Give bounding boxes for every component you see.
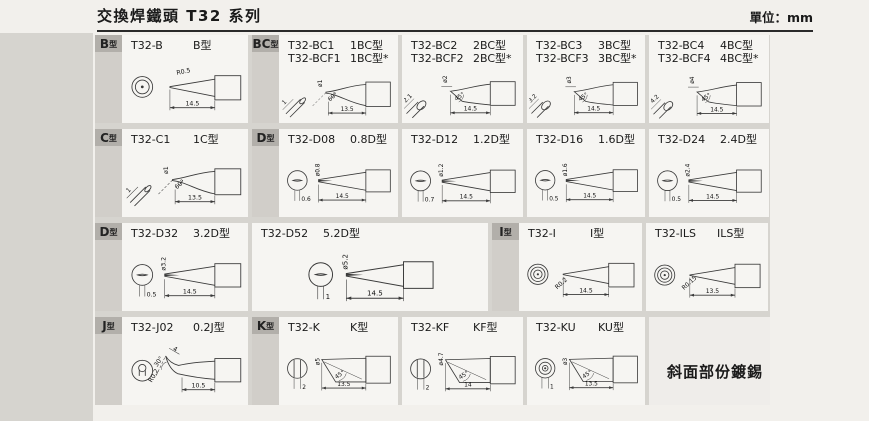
svg-text:14.5: 14.5: [584, 194, 597, 200]
svg-text:0.5: 0.5: [672, 197, 682, 203]
model-type: 1.2D型: [473, 133, 510, 146]
model-name: T32-D52: [261, 227, 323, 240]
model-entry: T32-KFKF型: [411, 321, 521, 334]
model-type: 0.8D型: [350, 133, 387, 146]
tip-row: B型 T32-BB型 R0.514.5 BC型 T32-BC11BC型T32-B…: [95, 35, 770, 123]
svg-text:13.5: 13.5: [706, 288, 720, 295]
svg-text:R0.2: R0.2: [554, 277, 569, 292]
tip-drawing-svg: 1ø160°13.5: [281, 69, 395, 120]
svg-text:ø1.2: ø1.2: [438, 163, 445, 176]
svg-text:ø4.7: ø4.7: [438, 352, 445, 365]
note-area: 斜面部份鍍錫: [649, 317, 770, 405]
model-name: T32-BC1: [288, 39, 350, 52]
tip-drawing-svg: 430°R0.210.5: [125, 343, 246, 397]
tip-drawing: R0.214.5: [519, 240, 642, 311]
tip-drawing-svg: 2ø545°13.5: [281, 344, 395, 395]
model-entry: T32-BC33BC型: [536, 39, 643, 52]
svg-text:ø3: ø3: [567, 76, 573, 84]
tip-drawing: ø44.245°14.5: [649, 65, 769, 123]
model-type: 5.2D型: [323, 227, 360, 240]
tip-drawing-svg: 1ø160°13.5: [125, 155, 246, 209]
type-badge: BC型: [252, 35, 279, 52]
model-list: T32-KUKU型: [527, 317, 645, 334]
page-left-margin: [0, 33, 93, 421]
model-list: T32-D161.6D型: [527, 129, 645, 146]
type-badge-column: D型: [95, 223, 122, 311]
tip-cell: T32-KFKF型 2ø4.745°14: [402, 317, 523, 405]
tip-cell-body: T32-BC33BC型T32-BCF33BC型* ø33.245°14.5: [527, 35, 645, 123]
model-name: T32-KU: [536, 321, 598, 334]
model-list: T32-D525.2D型: [252, 223, 488, 240]
svg-text:45°: 45°: [454, 91, 467, 103]
model-list: T32-J020.2J型: [122, 317, 248, 334]
model-entry: T32-D161.6D型: [536, 133, 643, 146]
tip-cell-body: T32-D242.4D型 0.5ø2.414.5: [649, 129, 769, 217]
model-name: T32-ILS: [655, 227, 717, 240]
svg-text:2: 2: [303, 385, 307, 391]
model-list: T32-KK型: [279, 317, 398, 334]
tip-drawing: R0.1513.5: [646, 240, 768, 311]
model-list: T32-BC44BC型T32-BCF44BC型*: [649, 35, 769, 65]
model-entry: T32-BCF44BC型*: [658, 52, 767, 65]
svg-text:ø1: ø1: [318, 79, 324, 87]
tip-cell: T32-D242.4D型 0.5ø2.414.5: [649, 129, 769, 217]
svg-text:1: 1: [326, 292, 331, 301]
model-entry: T32-BC11BC型: [288, 39, 396, 52]
type-badge-column: J型: [95, 317, 122, 405]
tip-cell: C型 T32-C11C型 1ø160°13.5: [95, 129, 248, 217]
model-type: 2BC型: [473, 39, 506, 52]
type-badge: I型: [492, 223, 519, 240]
model-type: 0.2J型: [193, 321, 225, 334]
tip-drawing: 1ø345°13.5: [527, 334, 645, 405]
model-name: T32-BCF1: [288, 52, 350, 65]
model-list: T32-D242.4D型: [649, 129, 769, 146]
model-name: T32-I: [528, 227, 590, 240]
tip-row: J型 T32-J020.2J型 430°R0.210.5 K型 T32-KK型 …: [95, 317, 770, 405]
model-name: T32-D24: [658, 133, 720, 146]
model-type: I型: [590, 227, 604, 240]
svg-text:45°: 45°: [458, 369, 471, 381]
model-name: T32-D32: [131, 227, 193, 240]
model-type: 1BC型: [350, 39, 383, 52]
model-type: ILS型: [717, 227, 744, 240]
svg-text:14.5: 14.5: [460, 193, 473, 200]
model-type: 3.2D型: [193, 227, 230, 240]
model-type: 3BC型: [598, 39, 631, 52]
model-list: T32-D121.2D型: [402, 129, 523, 146]
model-list: T32-D323.2D型: [122, 223, 248, 240]
page-header: 交換焊鐵頭 T32 系列 單位：mm: [97, 5, 813, 32]
tip-cell-body: T32-KFKF型 2ø4.745°14: [402, 317, 523, 405]
model-type: KU型: [598, 321, 624, 334]
model-entry: T32-D121.2D型: [411, 133, 521, 146]
model-name: T32-B: [131, 39, 193, 52]
unit-label: 單位：mm: [749, 7, 813, 26]
tip-drawing-svg: 0.5ø2.414.5: [651, 156, 766, 207]
model-name: T32-BCF4: [658, 52, 720, 65]
model-list: T32-KFKF型: [402, 317, 523, 334]
tip-drawing-svg: ø44.245°14.5: [651, 69, 766, 120]
model-entry: T32-D323.2D型: [131, 227, 246, 240]
svg-text:13.5: 13.5: [188, 194, 202, 201]
tip-cell: BC型 T32-BC11BC型T32-BCF11BC型* 1ø160°13.5: [252, 35, 398, 123]
model-name: T32-BCF2: [411, 52, 473, 65]
svg-text:ø2: ø2: [443, 76, 450, 84]
svg-text:ø5.2: ø5.2: [340, 254, 349, 270]
tip-drawing-svg: 2ø4.745°14: [404, 344, 520, 395]
tip-cell: T32-BC33BC型T32-BCF33BC型* ø33.245°14.5: [527, 35, 645, 123]
svg-text:2: 2: [426, 384, 430, 391]
model-name: T32-BC4: [658, 39, 720, 52]
tip-cell-body: T32-J020.2J型 430°R0.210.5: [122, 317, 248, 405]
tip-drawing-svg: ø22.145°14.5: [404, 68, 520, 119]
tip-drawing: 0.5ø2.414.5: [649, 146, 769, 217]
svg-text:3.2: 3.2: [529, 93, 539, 104]
tip-cell: T32-KUKU型 1ø345°13.5: [527, 317, 645, 405]
model-type: 1BC型*: [350, 52, 389, 65]
page-title: 交換焊鐵頭 T32 系列: [97, 5, 262, 26]
svg-text:14.5: 14.5: [707, 194, 720, 200]
tip-drawing-svg: 1ø345°13.5: [529, 344, 642, 394]
svg-text:30°: 30°: [152, 354, 165, 368]
svg-text:1: 1: [550, 385, 554, 391]
tip-cell: J型 T32-J020.2J型 430°R0.210.5: [95, 317, 248, 405]
type-badge: D型: [252, 129, 279, 146]
model-entry: T32-II型: [528, 227, 640, 240]
svg-text:13.5: 13.5: [338, 382, 351, 388]
model-list: T32-D080.8D型: [279, 129, 398, 146]
model-type: 3BC型*: [598, 52, 637, 65]
svg-text:0.5: 0.5: [550, 197, 560, 203]
tip-drawing-svg: 0.5ø1.614.5: [529, 156, 642, 206]
svg-text:2.1: 2.1: [404, 93, 414, 105]
model-type: 1C型: [193, 133, 219, 146]
model-name: T32-D08: [288, 133, 350, 146]
svg-text:ø5: ø5: [316, 358, 322, 366]
tip-cell-body: T32-D161.6D型 0.5ø1.614.5: [527, 129, 645, 217]
tip-drawing: 0.5ø3.214.5: [122, 240, 248, 311]
tip-cell: I型 T32-II型 R0.214.5: [492, 223, 642, 311]
tip-cell: T32-D525.2D型 1ø5.214.5: [252, 223, 488, 311]
tip-cell: K型 T32-KK型 2ø545°13.5: [252, 317, 398, 405]
tip-drawing-svg: 1ø5.214.5: [301, 245, 439, 306]
model-entry: T32-BC22BC型: [411, 39, 521, 52]
tip-drawing: 0.7ø1.214.5: [402, 146, 523, 217]
model-entry: T32-ILSILS型: [655, 227, 766, 240]
model-type: 4BC型: [720, 39, 753, 52]
model-name: T32-D12: [411, 133, 473, 146]
svg-text:10.5: 10.5: [191, 382, 205, 389]
tip-cell-body: T32-BC11BC型T32-BCF11BC型* 1ø160°13.5: [279, 35, 398, 123]
type-badge-column: C型: [95, 129, 122, 217]
tip-cell-body: T32-BC44BC型T32-BCF44BC型* ø44.245°14.5: [649, 35, 769, 123]
tip-cell: T32-BC22BC型T32-BCF22BC型* ø22.145°14.5: [402, 35, 523, 123]
svg-text:0.7: 0.7: [425, 196, 435, 203]
tip-cell-body: T32-D080.8D型 0.6ø0.814.5: [279, 129, 398, 217]
svg-text:13.5: 13.5: [341, 107, 354, 113]
svg-text:0.5: 0.5: [146, 291, 156, 298]
type-badge: B型: [95, 35, 122, 52]
tip-drawing-svg: 0.6ø0.814.5: [281, 156, 395, 207]
tip-drawing: 430°R0.210.5: [122, 334, 248, 405]
tip-cell-body: T32-D525.2D型 1ø5.214.5: [252, 223, 488, 311]
svg-text:14.5: 14.5: [336, 194, 349, 200]
svg-text:14.5: 14.5: [711, 107, 724, 113]
svg-text:R0.15: R0.15: [681, 274, 699, 291]
svg-text:ø4: ø4: [690, 76, 696, 84]
type-badge-column: B型: [95, 35, 122, 123]
model-type: 2BC型*: [473, 52, 512, 65]
type-badge-column: D型: [252, 129, 279, 217]
svg-text:13.5: 13.5: [585, 382, 598, 388]
tip-cell: D型 T32-D080.8D型 0.6ø0.814.5: [252, 129, 398, 217]
tip-drawing-svg: ø33.245°14.5: [529, 69, 642, 119]
model-entry: T32-D242.4D型: [658, 133, 767, 146]
tip-drawing: 2ø4.745°14: [402, 334, 523, 405]
model-entry: T32-C11C型: [131, 133, 246, 146]
tip-drawing: 1ø160°13.5: [279, 65, 398, 123]
tip-cell: T32-ILSILS型 R0.1513.5: [646, 223, 768, 311]
tip-drawing-svg: R0.214.5: [521, 249, 639, 301]
svg-text:60°: 60°: [172, 177, 186, 190]
tip-drawing: 0.5ø1.614.5: [527, 146, 645, 217]
model-entry: T32-BCF11BC型*: [288, 52, 396, 65]
svg-text:ø3: ø3: [563, 358, 569, 366]
tip-drawing: ø22.145°14.5: [402, 65, 523, 123]
tip-drawing: 2ø545°13.5: [279, 334, 398, 405]
svg-text:ø1.6: ø1.6: [563, 164, 569, 177]
type-badge-column: I型: [492, 223, 519, 311]
type-badge: K型: [252, 317, 279, 334]
tip-drawing: 1ø160°13.5: [122, 146, 248, 217]
model-list: T32-C11C型: [122, 129, 248, 146]
tip-drawing: 0.6ø0.814.5: [279, 146, 398, 217]
tip-cell-body: T32-BC22BC型T32-BCF22BC型* ø22.145°14.5: [402, 35, 523, 123]
model-list: T32-ILSILS型: [646, 223, 768, 240]
svg-text:14.5: 14.5: [182, 288, 196, 295]
svg-text:ø2.4: ø2.4: [686, 163, 692, 176]
model-entry: T32-D080.8D型: [288, 133, 396, 146]
model-name: T32-BC3: [536, 39, 598, 52]
tip-row: C型 T32-C11C型 1ø160°13.5 D型 T32-D080.8D型 …: [95, 129, 770, 217]
tip-cell-body: T32-D121.2D型 0.7ø1.214.5: [402, 129, 523, 217]
svg-text:14.5: 14.5: [588, 107, 601, 113]
svg-text:14.5: 14.5: [367, 289, 383, 298]
svg-text:R0.5: R0.5: [175, 67, 190, 77]
model-name: T32-J02: [131, 321, 193, 334]
tip-cell-body: T32-BB型 R0.514.5: [122, 35, 248, 123]
model-type: 2.4D型: [720, 133, 757, 146]
type-badge: D型: [95, 223, 122, 240]
svg-text:14.5: 14.5: [185, 100, 199, 107]
model-list: T32-BC22BC型T32-BCF22BC型*: [402, 35, 523, 65]
type-badge-column: K型: [252, 317, 279, 405]
tip-cell: T32-BC44BC型T32-BCF44BC型* ø44.245°14.5: [649, 35, 769, 123]
tip-cell-body: T32-C11C型 1ø160°13.5: [122, 129, 248, 217]
svg-text:0.6: 0.6: [302, 197, 312, 203]
type-badge-column: BC型: [252, 35, 279, 123]
tip-cell: T32-D121.2D型 0.7ø1.214.5: [402, 129, 523, 217]
tip-grid: B型 T32-BB型 R0.514.5 BC型 T32-BC11BC型T32-B…: [95, 35, 770, 405]
tip-cell: T32-D161.6D型 0.5ø1.614.5: [527, 129, 645, 217]
model-entry: T32-KUKU型: [536, 321, 643, 334]
model-type: 1.6D型: [598, 133, 635, 146]
model-type: B型: [193, 39, 212, 52]
model-entry: T32-KK型: [288, 321, 396, 334]
tip-row: D型 T32-D323.2D型 0.5ø3.214.5 T32-D525.2D型…: [95, 223, 770, 311]
svg-text:ø1: ø1: [163, 166, 170, 174]
svg-text:4: 4: [171, 345, 178, 353]
model-name: T32-D16: [536, 133, 598, 146]
model-list: T32-BB型: [122, 35, 248, 52]
model-list: T32-II型: [519, 223, 642, 240]
model-entry: T32-J020.2J型: [131, 321, 246, 334]
tip-cell: D型 T32-D323.2D型 0.5ø3.214.5: [95, 223, 248, 311]
tip-cell-body: T32-ILSILS型 R0.1513.5: [646, 223, 768, 311]
tip-drawing: 1ø5.214.5: [252, 240, 488, 311]
model-entry: T32-BC44BC型: [658, 39, 767, 52]
tip-drawing-svg: R0.1513.5: [648, 250, 765, 302]
tip-drawing-svg: 0.5ø3.214.5: [125, 249, 246, 303]
model-type: KF型: [473, 321, 498, 334]
svg-text:4.2: 4.2: [651, 93, 661, 104]
svg-text:14: 14: [465, 381, 473, 388]
svg-text:45°: 45°: [335, 370, 347, 381]
model-name: T32-BCF3: [536, 52, 598, 65]
tip-cell-body: T32-II型 R0.214.5: [519, 223, 642, 311]
tip-cell-body: T32-KUKU型 1ø345°13.5: [527, 317, 645, 405]
model-list: T32-BC33BC型T32-BCF33BC型*: [527, 35, 645, 65]
model-entry: T32-D525.2D型: [261, 227, 486, 240]
type-badge: C型: [95, 129, 122, 146]
svg-text:ø0.8: ø0.8: [316, 163, 322, 176]
svg-text:14.5: 14.5: [580, 288, 594, 295]
model-entry: T32-BCF33BC型*: [536, 52, 643, 65]
type-badge: J型: [95, 317, 122, 334]
model-name: T32-KF: [411, 321, 473, 334]
tip-drawing: ø33.245°14.5: [527, 65, 645, 123]
tip-cell-body: T32-KK型 2ø545°13.5: [279, 317, 398, 405]
model-entry: T32-BCF22BC型*: [411, 52, 521, 65]
plating-note: 斜面部份鍍錫: [667, 361, 763, 382]
model-name: T32-K: [288, 321, 350, 334]
model-name: T32-BC2: [411, 39, 473, 52]
svg-text:ø3.2: ø3.2: [160, 257, 167, 271]
model-type: 4BC型*: [720, 52, 759, 65]
svg-text:14.5: 14.5: [464, 106, 477, 113]
model-type: K型: [350, 321, 368, 334]
tip-drawing: R0.514.5: [122, 52, 248, 123]
model-list: T32-BC11BC型T32-BCF11BC型*: [279, 35, 398, 65]
tip-cell-body: T32-D323.2D型 0.5ø3.214.5: [122, 223, 248, 311]
model-entry: T32-BB型: [131, 39, 246, 52]
tip-drawing-svg: 0.7ø1.214.5: [404, 156, 520, 207]
tip-cell: B型 T32-BB型 R0.514.5: [95, 35, 248, 123]
model-name: T32-C1: [131, 133, 193, 146]
tip-drawing-svg: R0.514.5: [125, 61, 246, 115]
